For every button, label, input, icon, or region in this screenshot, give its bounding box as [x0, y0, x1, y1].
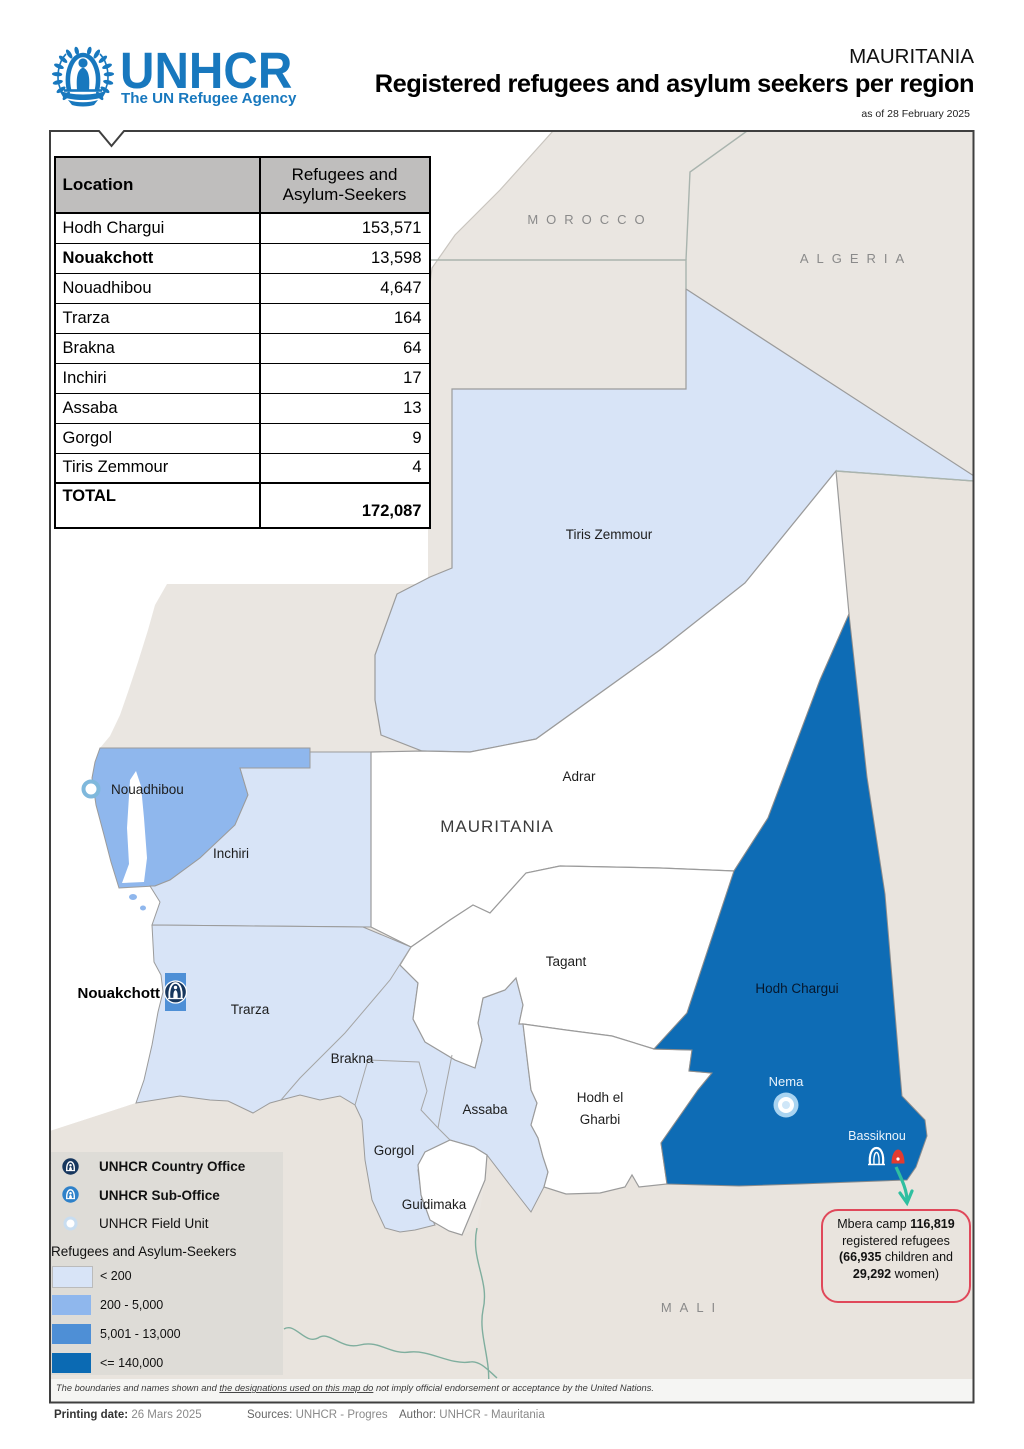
svg-text:Tiris Zemmour: Tiris Zemmour: [566, 527, 653, 542]
svg-text:ALGERIA: ALGERIA: [800, 251, 912, 266]
svg-text:Assaba: Assaba: [462, 1102, 508, 1117]
svg-text:Gharbi: Gharbi: [580, 1112, 621, 1127]
svg-text:MALI: MALI: [661, 1300, 723, 1315]
svg-text:Tagant: Tagant: [546, 954, 587, 969]
svg-text:Bassiknou: Bassiknou: [848, 1129, 906, 1143]
svg-text:Nema: Nema: [769, 1074, 804, 1089]
svg-text:Hodh el: Hodh el: [577, 1090, 624, 1105]
svg-text:Hodh Chargui: Hodh Chargui: [755, 981, 838, 996]
svg-text:Trarza: Trarza: [231, 1002, 270, 1017]
svg-text:Adrar: Adrar: [562, 769, 596, 784]
svg-text:The boundaries and names shown: The boundaries and names shown and the d…: [56, 1383, 654, 1393]
svg-text:Guidimaka: Guidimaka: [402, 1197, 467, 1212]
svg-text:Nouadhibou: Nouadhibou: [111, 782, 184, 797]
svg-text:MAURITANIA: MAURITANIA: [440, 817, 554, 836]
svg-text:MOROCCO: MOROCCO: [527, 212, 652, 227]
svg-text:Nouakchott: Nouakchott: [78, 985, 161, 1002]
svg-text:Inchiri: Inchiri: [213, 846, 249, 861]
svg-text:Brakna: Brakna: [331, 1051, 374, 1066]
svg-text:Gorgol: Gorgol: [374, 1143, 415, 1158]
